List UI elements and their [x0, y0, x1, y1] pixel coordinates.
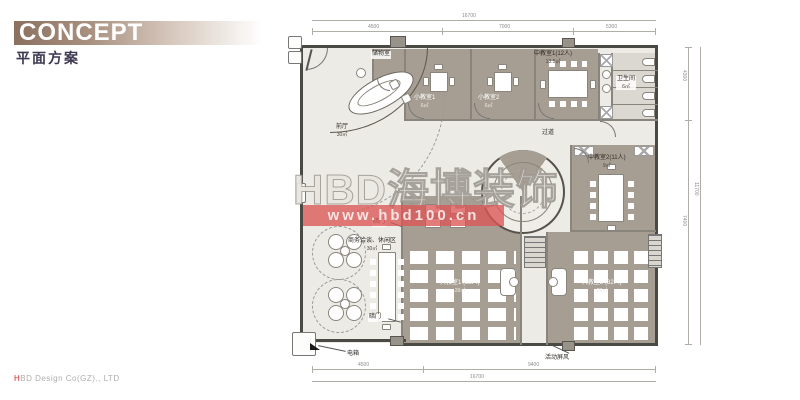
room-label-small-classroom-1: 小教室16㎡: [414, 95, 435, 109]
teacher-chair: [548, 277, 558, 287]
dimension-tick: [573, 28, 574, 35]
wall-segment: [470, 49, 472, 120]
column: [390, 36, 406, 48]
room-label-medium-classroom-2: 中教室2(11人)9㎡: [588, 155, 626, 169]
dimension-label: 11700: [693, 182, 699, 196]
chair: [382, 324, 391, 330]
dimension-tick: [655, 366, 656, 373]
concept-slide: CONCEPT 平面方案: [0, 0, 800, 400]
dimension-label: 16700: [470, 374, 484, 380]
wall-segment: [655, 45, 658, 346]
chair-column: [398, 254, 404, 320]
dimension-label: 4500: [358, 362, 369, 368]
chair-column: [370, 254, 376, 320]
dimension-label: 16700: [462, 13, 476, 19]
wall-segment: [520, 196, 522, 345]
dimension-label: 5300: [606, 24, 617, 30]
wall-hatch: [600, 54, 613, 67]
chair: [487, 77, 493, 86]
annotation-hidden-door-bottom: 暗门: [368, 314, 382, 322]
dimension-line: [700, 47, 701, 345]
stairs: [648, 234, 662, 268]
pilaster: [288, 51, 302, 64]
wall-segment: [404, 119, 600, 121]
room-label-storage: 储物室: [371, 51, 391, 59]
dimension-tick: [685, 120, 692, 121]
dimension-line: [312, 369, 656, 370]
dimension-tick: [423, 366, 424, 373]
chair: [540, 80, 546, 89]
watermark-url-band: www.hbd100.cn: [303, 205, 504, 226]
dimension-tick: [685, 344, 692, 345]
room-label-corridor: 过道: [542, 130, 554, 138]
conference-table: [548, 70, 588, 98]
lounge-table: [378, 252, 396, 322]
desk: [430, 72, 448, 92]
company-footer-rest: BD Design Co(GZ)., LTD: [20, 374, 119, 383]
annotation-electric-box: 电箱: [347, 351, 359, 359]
dimension-line: [312, 20, 656, 21]
room-label-big-classroom-2: 大教室2 (32人)28㎡: [582, 280, 622, 294]
sofa-table: [340, 299, 350, 309]
page-subtitle: 平面方案: [16, 48, 80, 68]
wall-segment: [546, 232, 548, 345]
dimension-label: 7000: [499, 24, 510, 30]
room-label-medium-classroom-1: 中教室1(12人)13.5㎡: [534, 51, 572, 65]
dimension-label: 9400: [528, 362, 539, 368]
pilaster: [288, 36, 302, 49]
stall-partition: [613, 104, 658, 105]
dimension-tick: [312, 28, 313, 35]
room-label-small-classroom-2: 小教室26㎡: [478, 95, 499, 109]
dimension-line: [312, 31, 656, 32]
sink: [602, 70, 611, 79]
side-table: [356, 68, 366, 78]
wall-segment: [570, 145, 572, 232]
dimension-tick: [442, 28, 443, 35]
wall-segment: [600, 119, 658, 121]
stairs: [524, 236, 546, 268]
dimension-line: [312, 381, 656, 382]
dimension-tick: [685, 47, 692, 48]
toilet: [642, 58, 655, 66]
column: [562, 38, 575, 48]
chair: [590, 80, 596, 89]
desk: [494, 72, 512, 92]
wall-segment: [403, 343, 658, 346]
column: [390, 336, 404, 346]
page-title: CONCEPT: [19, 19, 143, 47]
chair: [434, 64, 443, 70]
chair: [607, 225, 616, 231]
chair-column: [590, 176, 596, 220]
dimension-label: 4300: [681, 70, 687, 81]
annotation-movable-screen: 活动屏风: [545, 355, 569, 363]
wall-segment: [300, 45, 658, 48]
toilet: [642, 92, 655, 100]
chair: [423, 77, 429, 86]
chair: [449, 77, 455, 86]
stall-partition: [613, 70, 658, 71]
leader-line: [318, 345, 346, 352]
watermark-url: www.hbd100.cn: [328, 207, 480, 224]
dimension-tick: [312, 366, 313, 373]
chair: [513, 77, 519, 86]
wall-hatch: [634, 146, 654, 156]
dimension-label: 4500: [368, 24, 379, 30]
room-label-washroom: 卫生间6㎡: [616, 76, 636, 90]
sink: [602, 84, 611, 93]
chair-column: [628, 176, 634, 220]
title-gradient-bar: CONCEPT: [14, 21, 262, 45]
dimension-line: [688, 47, 689, 345]
electric-box-symbol: [310, 343, 320, 350]
room-label-lounge: 商务洽谈、休闲区30㎡: [348, 238, 396, 252]
company-footer: HBD Design Co(GZ)., LTD: [14, 374, 120, 383]
toilet: [642, 109, 655, 117]
toilet: [642, 75, 655, 83]
dimension-label: 7400: [681, 215, 687, 226]
conference-table: [598, 174, 624, 222]
room-label-big-classroom-1: 大教室1 (32人)28㎡: [440, 280, 480, 294]
chair: [498, 64, 507, 70]
room-label-front-hall: 前厅30㎡: [336, 124, 348, 138]
teacher-chair: [509, 277, 519, 287]
wall-hatch: [600, 106, 613, 119]
chair-row: [549, 101, 587, 107]
dimension-tick: [655, 28, 656, 35]
